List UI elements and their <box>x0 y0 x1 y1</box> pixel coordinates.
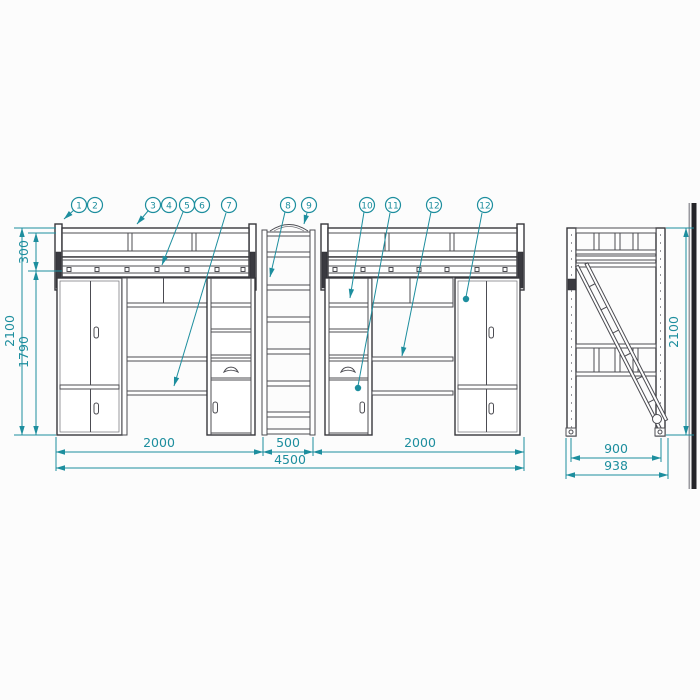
callouts: 1 2 3 4 5 6 7 8 <box>72 198 493 213</box>
svg-text:8: 8 <box>285 202 291 212</box>
callout-7: 7 <box>222 198 237 213</box>
technical-drawing-canvas: 2100 300 1790 2000 500 2000 4500 2100 90… <box>0 0 700 700</box>
door-handle <box>213 402 218 413</box>
svg-text:2: 2 <box>92 202 98 212</box>
callout-12a: 12 <box>427 198 442 213</box>
feet <box>566 428 665 436</box>
callout-5: 5 <box>180 198 195 213</box>
dim-front-ladder-width: 500 <box>276 435 300 450</box>
callout-4: 4 <box>162 198 177 213</box>
ladder-wheel <box>653 415 662 424</box>
svg-text:6: 6 <box>199 202 205 212</box>
dim-front-guardrail-height: 300 <box>16 240 31 264</box>
svg-text:3: 3 <box>150 202 156 212</box>
support-post-left <box>122 278 127 435</box>
dim-side-height-total: 2100 <box>666 316 681 348</box>
callout-2: 2 <box>88 198 103 213</box>
door-handle <box>360 402 365 413</box>
cabinet-left <box>207 278 255 435</box>
dim-front-height-total: 2100 <box>2 315 17 347</box>
callout-11: 11 <box>386 198 401 213</box>
callout-10: 10 <box>360 198 375 213</box>
desk-left <box>127 278 207 395</box>
svg-text:9: 9 <box>306 202 312 212</box>
svg-text:5: 5 <box>184 202 190 212</box>
door-handle <box>94 327 99 338</box>
svg-text:4: 4 <box>166 202 172 212</box>
drawing-page: 2100 300 1790 2000 500 2000 4500 2100 90… <box>0 0 700 700</box>
callout-6: 6 <box>195 198 210 213</box>
callout-3: 3 <box>146 198 161 213</box>
svg-text:11: 11 <box>387 202 398 212</box>
desk-right <box>372 278 453 395</box>
dim-side-depth: 900 <box>604 441 628 456</box>
guardrail-left <box>62 228 249 257</box>
svg-text:1: 1 <box>76 202 82 212</box>
side-view <box>566 228 671 436</box>
door-handle <box>94 403 99 414</box>
callout-1: 1 <box>72 198 87 213</box>
svg-text:12: 12 <box>428 202 439 212</box>
door-handle <box>489 327 494 338</box>
svg-text:7: 7 <box>226 202 232 212</box>
svg-text:10: 10 <box>361 202 373 212</box>
ladder-hook-bracket <box>568 279 576 290</box>
dim-front-right-width: 2000 <box>404 435 436 450</box>
cabinet-right <box>325 278 372 435</box>
callout-8: 8 <box>281 198 296 213</box>
callout-12b: 12 <box>478 198 493 213</box>
dim-side-depth-total: 938 <box>604 458 628 473</box>
svg-text:12: 12 <box>479 202 490 212</box>
front-view <box>55 224 524 435</box>
wall-edge-bar <box>689 203 697 489</box>
callout-9: 9 <box>302 198 317 213</box>
ladder-front <box>262 225 315 436</box>
door-handle <box>489 403 494 414</box>
dim-front-left-width: 2000 <box>143 435 175 450</box>
wardrobe-left <box>57 278 122 435</box>
bed-platform-left <box>62 257 249 277</box>
dim-front-clearance: 1790 <box>16 336 31 368</box>
dim-front-total-width: 4500 <box>274 452 306 467</box>
